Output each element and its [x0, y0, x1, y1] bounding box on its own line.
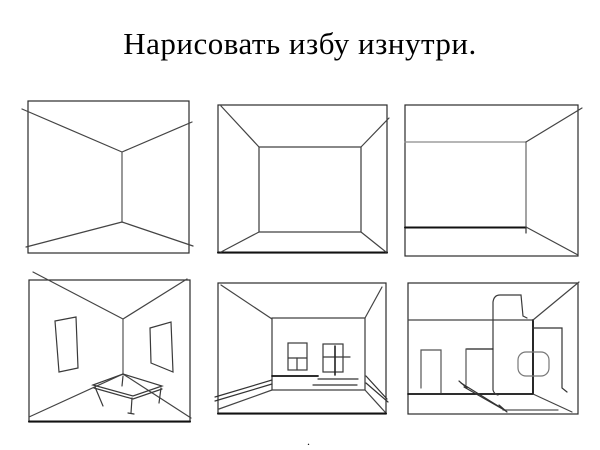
slide: Нарисовать избу изнутри.: [0, 0, 600, 450]
panel-frame: [29, 280, 190, 422]
ceiling-edge-left: [22, 109, 122, 152]
window-right-frame: [323, 344, 343, 372]
bench-tick-bottom: [499, 405, 507, 412]
door-frame: [421, 350, 441, 393]
ceiling-edge-right: [526, 108, 582, 142]
panel-room-stove: [408, 282, 579, 414]
panel-corner-empty-room: [22, 101, 193, 253]
panel-one-point-left-wall: [405, 105, 582, 256]
floor-edge-left: [26, 222, 122, 247]
floor-edge-right: [122, 222, 193, 246]
floor-edge-right: [533, 394, 572, 412]
panel-frame: [405, 105, 578, 256]
picture-frame-left: [55, 317, 78, 372]
ceiling-edge-right: [365, 287, 382, 318]
panel-room-windows-bench: [215, 283, 388, 414]
wall-bench: [215, 376, 388, 402]
panel-corner-furnished-room: [29, 272, 191, 422]
panel-frame: [28, 101, 189, 253]
floor-edge-right: [361, 232, 386, 252]
bench-right-edge-2: [366, 383, 388, 402]
bench: [459, 381, 507, 412]
perspective-sketches: [0, 0, 600, 450]
door: [421, 350, 441, 393]
window-left: [288, 343, 307, 370]
ceiling-edge-right: [533, 282, 579, 320]
floor-edge-left: [221, 232, 259, 252]
ceiling-edge-right: [361, 118, 389, 147]
picture-frame-right: [150, 322, 173, 372]
panel-frame: [218, 105, 387, 253]
table-leg-front: [131, 398, 132, 413]
ceiling-edge-right: [123, 279, 187, 319]
back-wall: [259, 147, 361, 232]
panel-frame: [218, 283, 386, 414]
table: [93, 374, 162, 414]
table-leg-back: [122, 376, 123, 386]
stove-side-panel: [533, 328, 567, 392]
floor-edge-left: [29, 374, 123, 417]
stove: [466, 295, 567, 395]
bench-right-edge-1: [366, 376, 387, 399]
panel-one-point-centered: [218, 105, 389, 253]
stove-front-edge: [493, 320, 498, 395]
table-leg-front-foot: [128, 413, 134, 414]
floor-edge-right: [526, 227, 578, 255]
bench-edge-2: [464, 387, 506, 411]
ceiling-edge-right: [122, 122, 192, 152]
ceiling-edge-left: [221, 106, 259, 147]
bench-left-edge-1: [215, 380, 272, 397]
ceiling-edge-left: [33, 272, 123, 319]
ceiling-edge-left: [221, 285, 272, 319]
window-right: [323, 344, 350, 375]
stove-chimney: [493, 295, 527, 320]
caption-dot: .: [307, 434, 310, 449]
